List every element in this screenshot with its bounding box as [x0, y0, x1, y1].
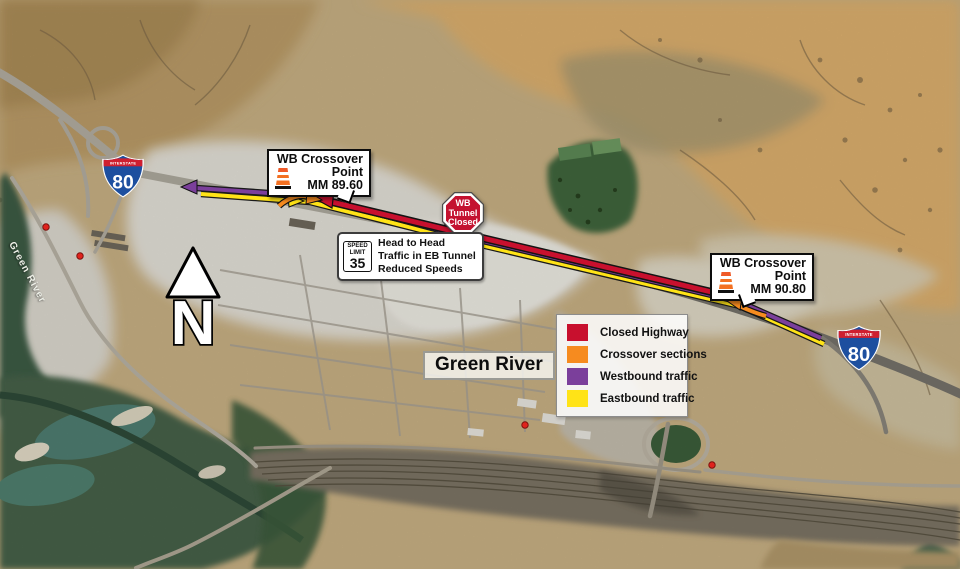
legend-swatch	[567, 368, 588, 385]
wb-tunnel-closed-sign: WB Tunnel Closed	[442, 192, 484, 234]
north-arrow: N	[164, 246, 222, 348]
satellite-map	[0, 0, 960, 569]
traffic-barrel-icon	[718, 272, 734, 293]
traffic-barrel-icon	[275, 168, 291, 189]
north-letter: N	[171, 289, 216, 348]
legend-item-westbound-traffic: Westbound traffic	[567, 368, 677, 385]
red-dot-marker	[522, 422, 528, 428]
route-number: 80	[848, 344, 871, 366]
interstate-banner-text: INTERSTATE	[110, 161, 137, 166]
red-dot-marker	[43, 224, 49, 230]
map-legend: Closed Highway Crossover sections Westbo…	[556, 314, 688, 417]
tunnel-sign-text: WB Tunnel Closed	[442, 199, 484, 228]
legend-swatch	[567, 346, 588, 363]
speed-limit-sign: SPEED LIMIT 35	[343, 241, 372, 272]
grain-texture	[0, 0, 960, 569]
route-number: 80	[112, 171, 134, 193]
callout-wb-crossover-west: WB Crossover Point MM 89.60	[267, 149, 371, 197]
red-dot-marker	[709, 462, 715, 468]
legend-swatch	[567, 324, 588, 341]
red-dot-marker	[77, 253, 83, 259]
city-label-green-river: Green River	[423, 351, 555, 380]
legend-item-crossover-sections: Crossover sections	[567, 346, 677, 363]
interstate-banner-text: INTERSTATE	[845, 332, 873, 337]
interstate-80-shield-east: INTERSTATE 80	[836, 324, 882, 372]
legend-item-closed-highway: Closed Highway	[567, 324, 677, 341]
legend-swatch	[567, 390, 588, 407]
legend-item-eastbound-traffic: Eastbound traffic	[567, 390, 677, 407]
traffic-control-map: INTERSTATE 80 INTERSTATE 80 WB Crossover…	[0, 0, 960, 569]
speed-limit-note: SPEED LIMIT 35 Head to Head Traffic in E…	[337, 232, 484, 281]
speed-note-text: Head to Head Traffic in EB Tunnel Reduce…	[378, 237, 476, 276]
callout-wb-crossover-east: WB Crossover Point MM 90.80	[710, 253, 814, 301]
interstate-80-shield-west: INTERSTATE 80	[101, 153, 145, 199]
